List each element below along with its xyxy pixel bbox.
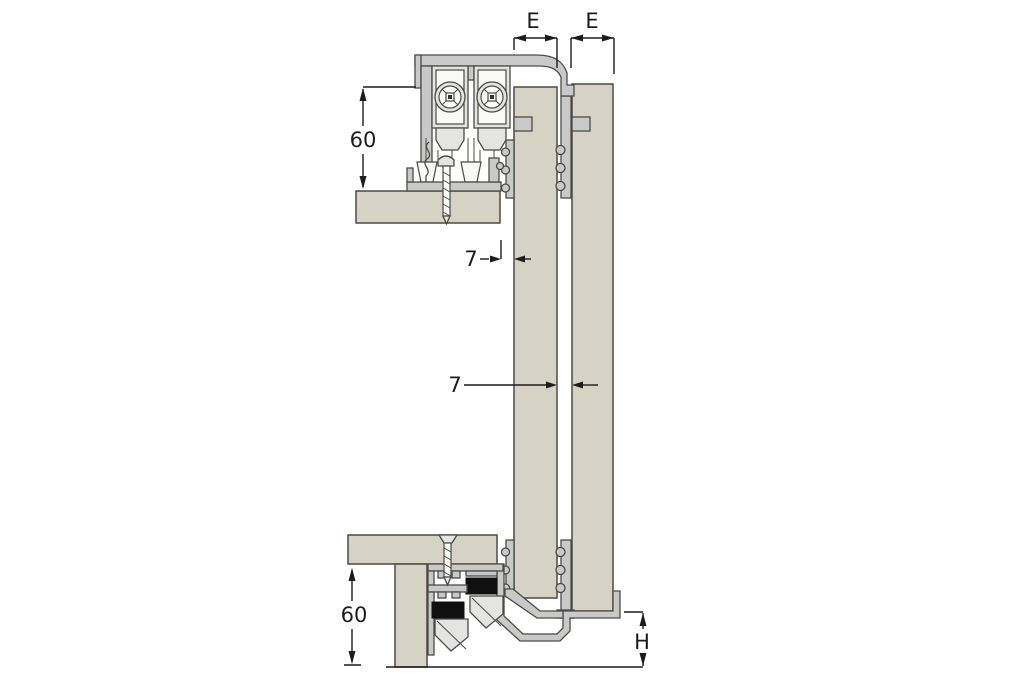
bottom-shelf-board	[348, 535, 497, 564]
lower-guide-channel	[428, 585, 468, 655]
panel-fixing-tab-outer	[572, 117, 590, 131]
diagram-page: E E 60 7	[0, 0, 1024, 681]
dim-h: H	[624, 612, 650, 666]
brush-seal-upper	[466, 578, 497, 594]
track-base-rail	[407, 182, 501, 191]
screw-tip	[444, 577, 451, 585]
top-shelf-board	[356, 191, 500, 223]
dim-7-front-label: 7	[464, 247, 477, 271]
dim-e-right-label: E	[585, 9, 598, 33]
wheel-axle	[490, 95, 494, 99]
door-panel-outer	[572, 84, 613, 611]
dim-60-bottom: 60	[341, 568, 368, 665]
fixing-claw-right	[461, 162, 481, 182]
panel-edge-profile-inner-top	[502, 140, 515, 198]
track-center-divider	[468, 66, 474, 80]
panel-edge-profile-outer-bottom	[556, 540, 574, 618]
hook-bump	[497, 163, 504, 170]
screw-head	[438, 156, 454, 166]
bottom-post-board	[395, 564, 427, 667]
height-adjuster	[478, 128, 506, 150]
dim-e-right: E	[571, 9, 614, 74]
track-base-left-lip	[407, 168, 413, 182]
dim-e-left-label: E	[526, 9, 539, 33]
dim-60-top-label: 60	[350, 128, 377, 152]
panel-edge-profile-outer-top	[556, 96, 571, 198]
height-adjuster	[436, 128, 464, 150]
dim-60-bottom-label: 60	[341, 603, 368, 627]
roller-carriage-1	[432, 66, 468, 150]
track-base-right-hook	[489, 158, 499, 182]
door-panel-inner	[514, 87, 557, 598]
dim-60-top: 60	[350, 87, 416, 189]
roller-carriage-2	[474, 66, 510, 150]
dim-7-gap-label: 7	[448, 373, 461, 397]
door-panels	[502, 84, 614, 618]
fixing-claw-left	[417, 162, 437, 182]
brush-seal-lower	[432, 602, 464, 618]
technical-diagram-canvas: E E 60 7	[0, 0, 1024, 681]
dim-h-label: H	[634, 630, 650, 654]
panel-fixing-tab-inner	[514, 117, 532, 131]
wheel-axle	[448, 95, 452, 99]
top-cover-left-hook	[415, 55, 421, 88]
